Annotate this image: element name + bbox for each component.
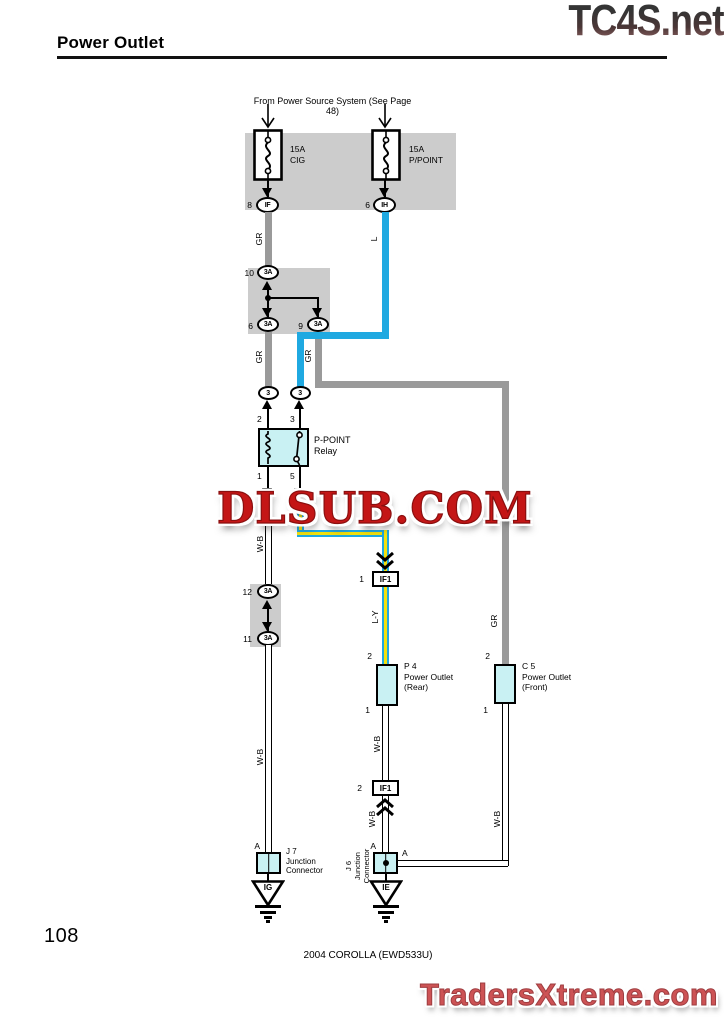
ground-icon [373, 905, 399, 908]
connector-oval: IH [373, 197, 396, 213]
wire-segment [299, 404, 301, 428]
fuse-ppoint-label: 15A P/POINT [409, 144, 443, 165]
arrow-down-icon [379, 188, 389, 197]
connector-oval: IF [256, 197, 279, 213]
wire-color-label: W-B [255, 737, 265, 777]
wire-color-label: GR [254, 337, 264, 377]
wire-gr [265, 212, 272, 267]
pin-number: 1 [257, 471, 262, 481]
connector-oval: 3A [257, 631, 279, 646]
connector-oval: 3A [257, 584, 279, 599]
relay-name: P-POINT [314, 435, 351, 446]
ground-icon [378, 911, 394, 914]
ground-code: IE [377, 883, 395, 892]
j7-label: J 7 Junction Connector [286, 847, 323, 876]
pin-number: 2 [350, 783, 362, 793]
wire-l [297, 332, 304, 387]
ground-icon [260, 911, 276, 914]
wire-wb [382, 706, 389, 781]
wire-color-label: GR [303, 336, 313, 376]
pin-number: 10 [236, 268, 254, 278]
pin-number: 6 [358, 200, 370, 210]
fuse-cig-icon [253, 129, 283, 181]
junction-dot [383, 860, 389, 866]
p4-name: (Rear) [404, 682, 453, 693]
wire-l [382, 212, 389, 339]
wire-segment [267, 404, 269, 428]
c5-label: C 5 Power Outlet (Front) [522, 661, 571, 693]
c5-name: (Front) [522, 682, 571, 693]
pin-number: 1 [358, 705, 370, 715]
ground-code: IG [259, 883, 277, 892]
connector-box: IF1 [372, 780, 399, 796]
ground-icon [384, 920, 388, 923]
page-number: 108 [44, 925, 79, 948]
wire-color-label: W-B [372, 724, 382, 764]
wire-ly [382, 587, 389, 664]
power-outlet-rear [376, 664, 398, 706]
tc4s-logo: TC4S.net [569, 0, 724, 46]
wire-gr [265, 332, 272, 387]
j6-name: Junction [353, 843, 362, 889]
source-arrow-icon [377, 104, 393, 130]
pin-number: 11 [234, 634, 252, 644]
watermark-tradersxtreme: TradersXtreme.com [420, 977, 718, 1013]
source-arrow-icon [260, 104, 276, 130]
wire-color-label: GR [489, 601, 499, 641]
connector-oval: 3A [307, 317, 329, 332]
wire-gr [315, 332, 322, 384]
wire-color-label: W-B [492, 799, 502, 839]
double-chevron-up-icon [375, 798, 395, 816]
c5-code: C 5 [522, 661, 571, 672]
j7-code: J 7 [286, 847, 323, 857]
pin-number: 5 [290, 471, 295, 481]
p4-code: P 4 [404, 661, 453, 672]
wire-wb [502, 704, 509, 866]
p4-name: Power Outlet [404, 672, 453, 683]
wire-l [297, 332, 389, 339]
connector-oval: 3A [257, 265, 279, 280]
arrow-down-icon [262, 622, 272, 631]
ground-icon [264, 916, 272, 919]
pin-number: 6 [241, 321, 253, 331]
wire-gr [315, 381, 509, 388]
wire-color-label: L [369, 219, 379, 259]
ground-icon [382, 916, 390, 919]
fuse-cig-rating: 15A [290, 144, 305, 155]
connector-oval: 3 [258, 386, 279, 400]
pin-number: 8 [240, 200, 252, 210]
wire-wb [398, 860, 508, 867]
ground-icon [255, 905, 281, 908]
connector-oval: 3A [257, 317, 279, 332]
pin-number: 3 [290, 414, 295, 424]
wire-color-label: GR [254, 219, 264, 259]
fuse-ppoint-rating: 15A [409, 144, 443, 155]
relay-internals-icon [258, 428, 309, 467]
manual-page: Power Outlet TC4S.net From Power Source … [0, 0, 724, 1024]
wire-color-label: L-Y [370, 597, 380, 637]
power-outlet-front [494, 664, 516, 704]
fuse-ppoint-name: P/POINT [409, 155, 443, 166]
relay-label: P-POINT Relay [314, 435, 351, 457]
double-chevron-down-icon [375, 552, 395, 570]
fuse-cig-name: CIG [290, 155, 305, 166]
pin-number: 9 [291, 321, 303, 331]
j7-name: Connector [286, 866, 323, 876]
relay-name: Relay [314, 446, 351, 457]
page-title: Power Outlet [57, 33, 164, 53]
pin-number: 2 [360, 651, 372, 661]
wire-wb [265, 645, 272, 853]
p4-label: P 4 Power Outlet (Rear) [404, 661, 453, 693]
pin-number: 12 [234, 587, 252, 597]
wire-segment [268, 297, 318, 299]
fuse-ppoint-icon [371, 129, 401, 181]
pin-letter: A [248, 841, 260, 851]
connector-box: IF1 [372, 571, 399, 587]
pin-letter: A [402, 848, 408, 858]
connector-oval: 3 [290, 386, 311, 400]
fuse-cig-label: 15A CIG [290, 144, 305, 165]
watermark-dlsub: DLSUB.COM [217, 484, 533, 534]
arrow-down-icon [262, 308, 272, 317]
arrow-down-icon [312, 308, 322, 317]
arrow-down-icon [262, 188, 272, 197]
j7-name: Junction [286, 857, 323, 867]
ground-icon [266, 920, 270, 923]
junction-connector-j7 [256, 852, 281, 874]
title-rule [57, 56, 667, 59]
j6-code: J 6 [344, 843, 353, 889]
pin-number: 1 [476, 705, 488, 715]
pin-number: 1 [352, 574, 364, 584]
document-code: 2004 COROLLA (EWD533U) [268, 950, 468, 961]
pin-number: 2 [478, 651, 490, 661]
pin-number: 2 [257, 414, 262, 424]
c5-name: Power Outlet [522, 672, 571, 683]
